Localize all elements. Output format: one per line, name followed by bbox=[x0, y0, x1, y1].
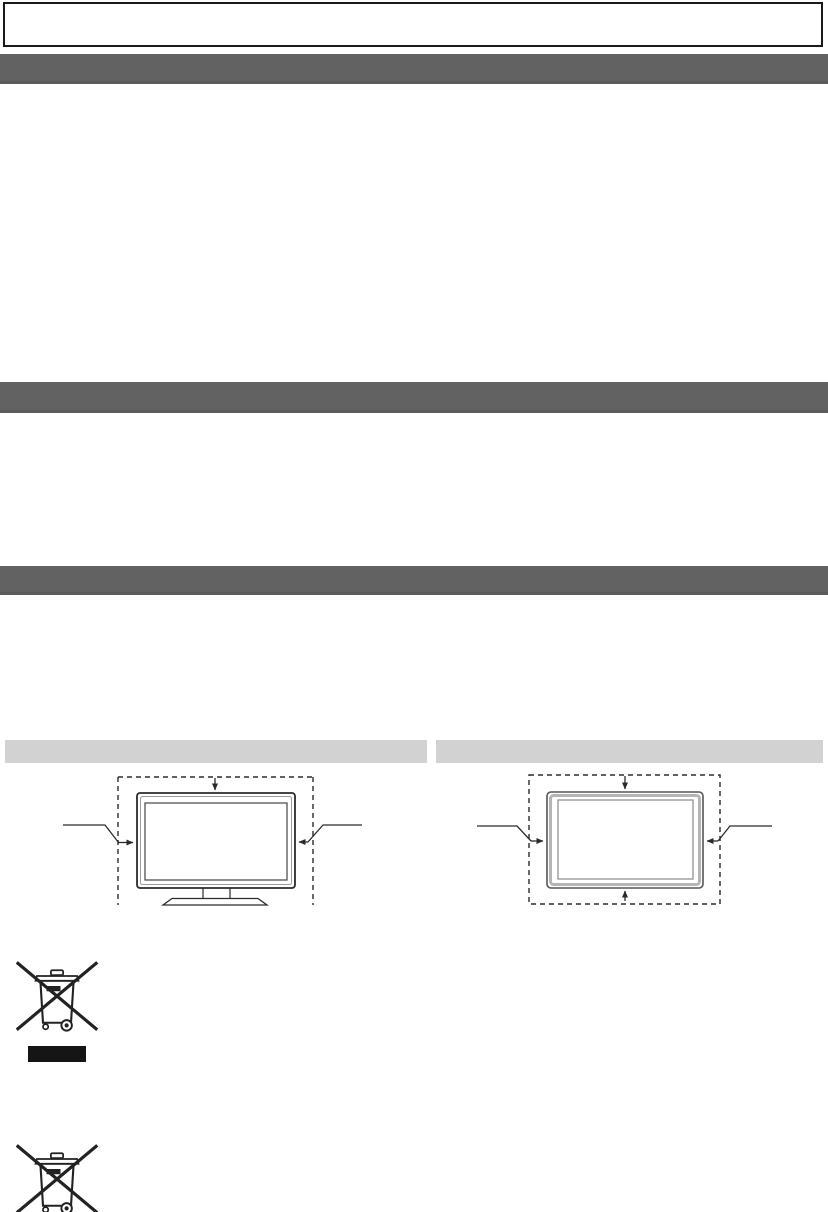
section-bar-3 bbox=[0, 566, 828, 595]
manual-page bbox=[0, 0, 828, 1212]
subsection-bar-left bbox=[5, 740, 427, 763]
crossed-out-wheelie-bin-icon bbox=[13, 951, 101, 1035]
crossed-out-wheelie-bin-icon bbox=[13, 1134, 101, 1212]
tv-front-view bbox=[547, 792, 703, 888]
tv-with-stand-clearance-diagram bbox=[55, 770, 375, 910]
tv-wall-mount-clearance-diagram bbox=[470, 770, 780, 910]
weee-black-bar bbox=[28, 1046, 86, 1062]
section-bar-2 bbox=[0, 382, 828, 413]
tv-front-view bbox=[137, 793, 295, 905]
section-bar-1 bbox=[0, 54, 828, 84]
note-box bbox=[3, 2, 823, 47]
subsection-bar-right bbox=[436, 740, 823, 763]
